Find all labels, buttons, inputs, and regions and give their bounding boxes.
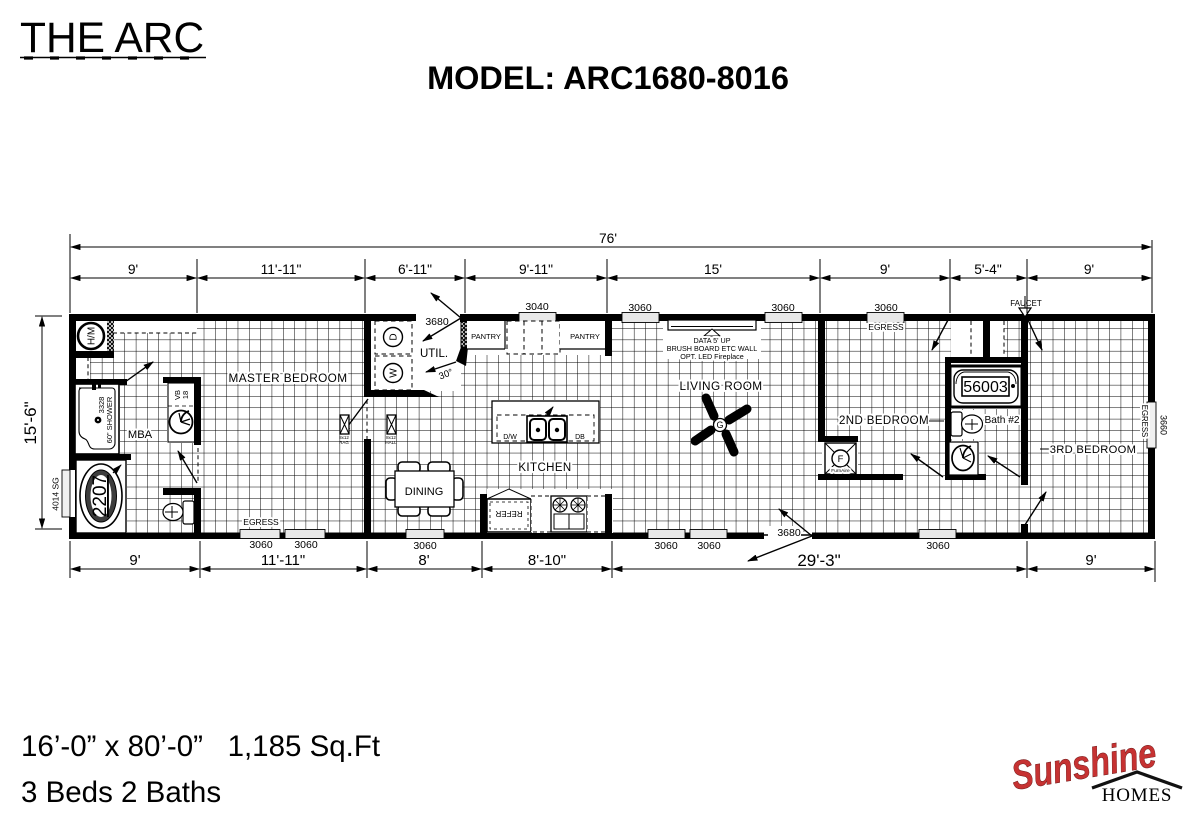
svg-text:EGRESS: EGRESS [1140,405,1149,438]
svg-text:EGRESS: EGRESS [868,322,904,332]
svg-text:9': 9' [129,552,140,569]
svg-text:2ND BEDROOM: 2ND BEDROOM [839,415,929,427]
svg-text:MODEL: ARC1680-8016: MODEL: ARC1680-8016 [427,60,789,96]
svg-text:HALL: HALL [385,440,397,445]
svg-text:11'-11": 11'-11" [261,262,302,277]
svg-text:76': 76' [599,231,617,246]
svg-text:3060: 3060 [926,540,950,552]
svg-text:60” SHOWER: 60” SHOWER [105,396,114,443]
svg-text:6'-11": 6'-11" [398,262,432,277]
svg-text:3680: 3680 [777,527,801,539]
svg-text:FurnAire: FurnAire [831,468,850,474]
svg-text:3040: 3040 [525,301,549,313]
svg-text:DB: DB [575,434,585,441]
svg-text:16’-0” x 80’-0” 1,185 Sq.Ft: 16’-0” x 80’-0” 1,185 Sq.Ft [21,730,380,763]
svg-text:3 Beds 2 Baths: 3 Beds 2 Baths [21,776,221,809]
svg-text:KITCHEN: KITCHEN [518,462,571,474]
svg-text:8': 8' [418,552,429,569]
svg-text:3680: 3680 [425,316,449,328]
svg-text:PANTRY: PANTRY [570,332,600,341]
svg-text:PANTRY: PANTRY [471,332,501,341]
svg-text:5'-4": 5'-4" [974,262,1002,277]
svg-text:2207: 2207 [90,475,111,517]
svg-text:3060: 3060 [628,302,652,314]
svg-text:3060: 3060 [771,302,795,314]
svg-text:DINING: DINING [405,486,444,498]
svg-text:MASTER BEDROOM: MASTER BEDROOM [229,371,348,385]
svg-text:15': 15' [704,262,722,277]
svg-text:UTIL.: UTIL. [420,348,448,360]
svg-text:H/M: H/M [87,327,98,345]
svg-text:9': 9' [128,262,138,277]
svg-text:3060: 3060 [249,539,273,551]
svg-text:11'-11": 11'-11" [261,552,305,569]
svg-text:3060: 3060 [697,540,721,552]
svg-text:HOMES: HOMES [1102,785,1173,806]
svg-text:THE ARC: THE ARC [20,15,204,62]
svg-text:EGRESS: EGRESS [243,517,279,527]
svg-text:3060: 3060 [413,540,437,552]
svg-text:3660: 3660 [1159,415,1169,435]
svg-text:9': 9' [1084,262,1094,277]
svg-text:8'-10": 8'-10" [528,552,566,569]
svg-text:MBA: MBA [128,429,153,441]
svg-text:3060: 3060 [654,540,678,552]
svg-text:D/W: D/W [503,434,517,441]
svg-text:FAUCET: FAUCET [1010,299,1042,308]
svg-text:3060: 3060 [874,302,898,314]
svg-text:4014 SG: 4014 SG [51,477,61,511]
svg-text:LIVING ROOM: LIVING ROOM [679,379,762,393]
svg-text:G: G [716,420,723,430]
svg-text:56003: 56003 [963,379,1008,396]
svg-text:OPT. LED Fireplace: OPT. LED Fireplace [680,352,744,361]
svg-text:29'-3": 29'-3" [797,551,840,570]
svg-text:3060: 3060 [294,539,318,551]
svg-text:REFER: REFER [495,509,522,518]
svg-text:9': 9' [1085,552,1096,569]
svg-text:Bath #2: Bath #2 [984,415,1019,426]
svg-text:9': 9' [880,262,890,277]
svg-text:18: 18 [181,391,190,399]
svg-text:9'-11": 9'-11" [519,262,553,277]
svg-text:D: D [389,333,400,340]
svg-text:F: F [838,454,844,465]
svg-text:3RD BEDROOM: 3RD BEDROOM [1050,444,1137,456]
svg-text:RAG: RAG [339,440,349,445]
svg-text:15'-6": 15'-6" [21,401,40,444]
svg-text:W: W [389,368,400,378]
